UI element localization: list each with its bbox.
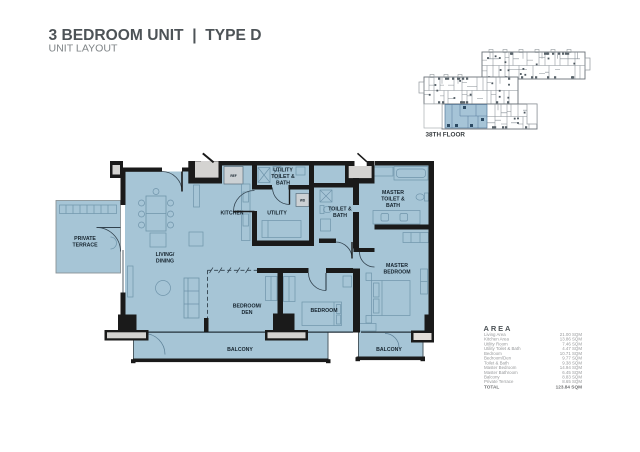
svg-text:MASTER: MASTER [386, 263, 408, 269]
svg-text:UTILITY: UTILITY [273, 168, 293, 174]
svg-text:TERRACE: TERRACE [72, 243, 98, 249]
svg-text:UNIT LAYOUT: UNIT LAYOUT [49, 42, 119, 54]
svg-text:PRIVATE: PRIVATE [74, 236, 96, 242]
svg-text:WD: WD [300, 199, 306, 203]
svg-text:REF: REF [230, 174, 236, 178]
svg-text:BATH: BATH [386, 203, 400, 209]
svg-text:MASTER: MASTER [382, 190, 404, 196]
svg-text:BATH: BATH [333, 213, 347, 219]
svg-text:LIVING/: LIVING/ [156, 252, 175, 258]
svg-text:123.84 SQM: 123.84 SQM [556, 384, 582, 389]
svg-text:BEDROOM/: BEDROOM/ [233, 304, 262, 310]
svg-text:UTILITY: UTILITY [267, 211, 287, 217]
svg-text:TOILET &: TOILET & [271, 174, 295, 180]
svg-text:DINING: DINING [156, 259, 174, 265]
svg-text:DEN: DEN [242, 310, 253, 316]
svg-text:BEDROOM: BEDROOM [310, 308, 337, 314]
svg-text:BALCONY: BALCONY [376, 347, 402, 353]
svg-text:BATH: BATH [276, 181, 290, 187]
svg-text:38TH FLOOR: 38TH FLOOR [426, 132, 466, 139]
svg-text:TOILET &: TOILET & [328, 207, 352, 213]
svg-text:BEDROOM: BEDROOM [383, 270, 410, 276]
svg-text:TOILET &: TOILET & [381, 197, 405, 203]
svg-text:TOTAL: TOTAL [484, 384, 499, 389]
svg-text:BALCONY: BALCONY [227, 347, 253, 353]
